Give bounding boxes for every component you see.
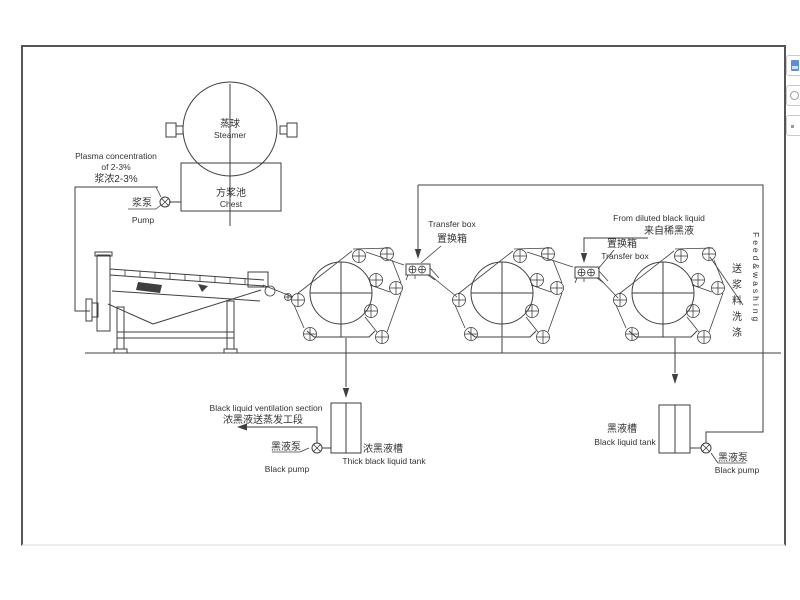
steamer-label-en: Steamer [214, 130, 246, 140]
chest-label-en: Chest [220, 199, 243, 209]
washer-drum-3 [614, 248, 725, 344]
thick-tank-label-en: Thick black liquid tank [342, 456, 426, 466]
transfer-box1-label-cn: 置换箱 [437, 232, 467, 245]
pulp-pump-label-en: Pump [132, 215, 154, 225]
pulp-chutes [263, 252, 743, 305]
transfer-box2-label-cn: 置换箱 [607, 237, 637, 250]
viewer-canvas: 蒸球 Steamer 方浆池 Chest Plasma concentratio… [0, 0, 800, 600]
washer-drum-1 [292, 248, 403, 344]
feed-note-line3: 浆浓2-3% [94, 172, 137, 185]
feed-note-line1: Plasma concentration [75, 151, 157, 161]
black-tank-label-en: Black liquid tank [594, 437, 656, 447]
black-tank-label-cn: 黑液槽 [607, 422, 637, 435]
black-pump-left-label-en: Black pump [265, 464, 310, 474]
pulp-pump-label-cn: 浆泵 [132, 196, 152, 209]
black-pump-right-label-en: Black pump [715, 465, 760, 475]
feeder-conveyor-machine [86, 252, 275, 353]
diluted-label-en: From diluted black liquid [613, 213, 705, 223]
transfer-box1-label-en: Transfer box [428, 219, 476, 229]
feed-washing-label-cn: 送浆料洗涤 [732, 262, 742, 339]
transfer-box-1 [406, 264, 439, 280]
drum-discharge-lines [343, 338, 678, 398]
process-diagram: 蒸球 Steamer 方浆池 Chest Plasma concentratio… [0, 0, 800, 600]
ventilation-label-cn: 浓黑液送蒸发工段 [223, 413, 303, 426]
thick-tank-label-cn: 浓黑液槽 [363, 442, 403, 455]
chest-label-cn: 方浆池 [216, 186, 246, 199]
ventilation-label-en: Black liquid ventilation section [210, 403, 323, 413]
black-pump-left-label-cn: 黑液泵 [271, 440, 301, 453]
thick-black-liquid-tank [322, 403, 361, 453]
diluted-label-cn: 来自稀黑液 [644, 224, 694, 237]
feed-washing-label-en: Feed&washing [751, 232, 761, 324]
black-pump-left-symbol [312, 443, 322, 453]
feed-note-line2: of 2-3% [101, 162, 131, 172]
transfer-box-2 [575, 267, 608, 283]
washer-drum-2 [453, 248, 564, 344]
pulp-pump-symbol [160, 197, 170, 207]
steamer-label-cn: 蒸球 [220, 117, 240, 130]
black-pump-right-label-cn: 黑液泵 [718, 451, 748, 464]
transfer-box1-leader [421, 246, 441, 263]
black-pump-right-symbol [701, 443, 711, 453]
